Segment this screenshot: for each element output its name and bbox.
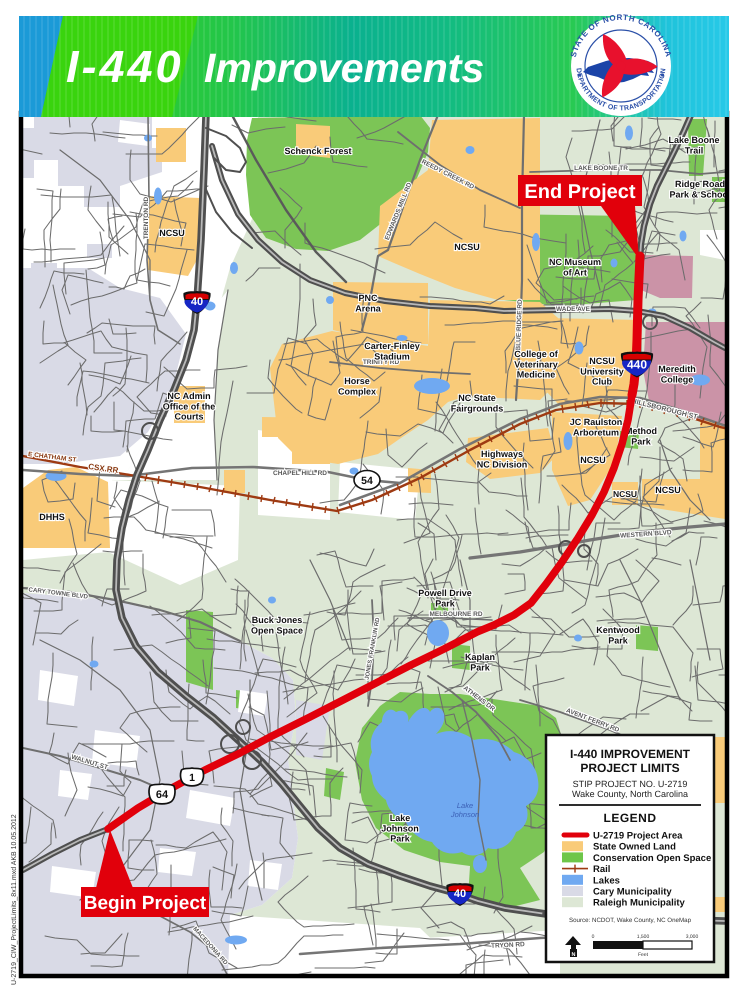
svg-text:HighwaysNC Division: HighwaysNC Division <box>477 449 528 469</box>
svg-text:0: 0 <box>592 934 595 940</box>
svg-text:U-2719_CIW_ProjectLimits_8x11.: U-2719_CIW_ProjectLimits_8x11.mxd AKB 10… <box>10 814 18 985</box>
svg-text:NCSU: NCSU <box>159 228 185 238</box>
svg-text:Johnson: Johnson <box>450 810 479 819</box>
svg-text:Ridge RoadPark & School: Ridge RoadPark & School <box>669 179 730 199</box>
svg-text:Schenck Forest: Schenck Forest <box>284 146 351 156</box>
svg-text:Cary Municipality: Cary Municipality <box>593 887 672 898</box>
svg-text:Wake County, North Carolina: Wake County, North Carolina <box>572 789 688 799</box>
svg-text:1,500: 1,500 <box>637 934 650 940</box>
svg-text:LAKE BOONE TR: LAKE BOONE TR <box>574 165 628 172</box>
svg-text:U-2719 Project Area: U-2719 Project Area <box>593 831 683 842</box>
svg-text:N: N <box>572 952 576 958</box>
svg-text:3,000: 3,000 <box>686 934 699 940</box>
svg-text:JC RaulstonArboretum: JC RaulstonArboretum <box>570 417 623 437</box>
svg-text:MeredithCollege: MeredithCollege <box>658 364 696 384</box>
svg-text:40: 40 <box>191 296 203 308</box>
svg-text:Feet: Feet <box>638 952 649 958</box>
svg-text:MELBOURNE RD: MELBOURNE RD <box>429 611 482 618</box>
svg-text:NCSU: NCSU <box>454 242 480 252</box>
svg-text:Rail: Rail <box>593 864 610 875</box>
svg-text:Improvements: Improvements <box>204 45 484 91</box>
svg-text:State Owned Land: State Owned Land <box>593 842 676 853</box>
svg-text:Raleigh Municipality: Raleigh Municipality <box>593 898 686 909</box>
svg-text:Source: NCDOT, Wake County, NC: Source: NCDOT, Wake County, NC OneMap <box>569 917 692 924</box>
svg-text:CHAPEL HILL RD: CHAPEL HILL RD <box>273 470 327 477</box>
svg-text:Lake: Lake <box>457 801 473 810</box>
svg-text:54: 54 <box>361 475 373 487</box>
svg-text:Conservation Open Space: Conservation Open Space <box>593 853 711 864</box>
svg-text:LEGEND: LEGEND <box>603 811 656 825</box>
svg-text:64: 64 <box>156 789 169 801</box>
svg-text:DHHS: DHHS <box>39 512 65 522</box>
svg-text:I-440 IMPROVEMENT: I-440 IMPROVEMENT <box>570 747 691 761</box>
svg-text:440: 440 <box>627 358 647 372</box>
svg-text:Buck JonesOpen Space: Buck JonesOpen Space <box>251 615 303 635</box>
svg-text:I-440: I-440 <box>66 41 184 92</box>
svg-text:NCSU: NCSU <box>613 489 637 499</box>
svg-text:Lakes: Lakes <box>593 875 620 886</box>
svg-text:NC StateFairgrounds: NC StateFairgrounds <box>451 393 504 413</box>
svg-text:1: 1 <box>189 772 195 784</box>
svg-text:40: 40 <box>454 888 466 900</box>
svg-text:College ofVeterinaryMedicine: College ofVeterinaryMedicine <box>514 349 559 380</box>
svg-text:PROJECT LIMITS: PROJECT LIMITS <box>580 761 679 775</box>
svg-text:NCSU: NCSU <box>580 455 606 465</box>
svg-text:WADE AVE: WADE AVE <box>556 306 591 313</box>
svg-text:End Project: End Project <box>524 181 635 203</box>
svg-text:TRENTON RD: TRENTON RD <box>143 196 150 239</box>
svg-text:NCSU: NCSU <box>655 485 681 495</box>
svg-text:STIP PROJECT NO. U-2719: STIP PROJECT NO. U-2719 <box>573 779 688 789</box>
svg-text:Begin Project: Begin Project <box>84 893 207 914</box>
